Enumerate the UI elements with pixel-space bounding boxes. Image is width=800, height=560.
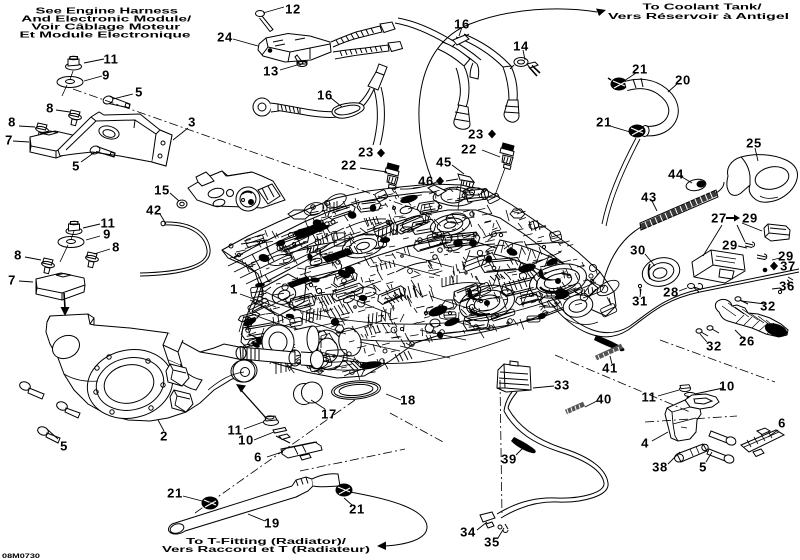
svg-text:6: 6: [254, 450, 262, 465]
svg-text:9: 9: [103, 227, 111, 242]
svg-text:25: 25: [746, 136, 762, 151]
svg-text:7: 7: [8, 273, 16, 288]
svg-text:24: 24: [217, 30, 233, 45]
svg-text:Vers Réservoir à Antigel: Vers Réservoir à Antigel: [608, 11, 789, 21]
svg-text:10: 10: [238, 433, 254, 448]
svg-text:39: 39: [501, 452, 517, 467]
svg-text:3: 3: [188, 115, 196, 130]
svg-text:22: 22: [461, 142, 477, 157]
svg-text:20: 20: [675, 73, 691, 88]
svg-text:32: 32: [760, 299, 776, 314]
svg-text:8: 8: [46, 101, 54, 116]
svg-text:35: 35: [484, 535, 500, 550]
svg-text:10: 10: [719, 379, 735, 394]
svg-text:23: 23: [468, 127, 484, 142]
svg-text:4: 4: [641, 436, 649, 451]
svg-text:12: 12: [285, 2, 301, 17]
svg-text:5: 5: [72, 159, 80, 174]
svg-text:33: 33: [554, 378, 570, 393]
svg-text:21: 21: [349, 502, 365, 517]
svg-text:27: 27: [711, 211, 727, 226]
svg-text:38: 38: [652, 460, 668, 475]
svg-text:11: 11: [104, 52, 119, 67]
svg-text:40: 40: [596, 392, 612, 407]
svg-text:44: 44: [668, 167, 684, 182]
svg-text:36: 36: [779, 279, 795, 294]
svg-text:14: 14: [513, 39, 529, 54]
svg-text:8: 8: [112, 240, 120, 255]
svg-text:34: 34: [460, 525, 476, 540]
svg-text:23: 23: [358, 145, 374, 160]
svg-text:18: 18: [400, 393, 416, 408]
svg-text:29: 29: [722, 238, 738, 253]
svg-text:15: 15: [154, 183, 170, 198]
svg-text:28: 28: [663, 285, 679, 300]
svg-text:13: 13: [263, 64, 279, 79]
svg-text:29: 29: [742, 211, 758, 226]
svg-text:26: 26: [739, 334, 755, 349]
svg-text:7: 7: [5, 133, 13, 148]
svg-text:16: 16: [317, 88, 333, 103]
svg-text:16: 16: [454, 17, 470, 32]
svg-text:8: 8: [14, 248, 22, 263]
svg-text:21: 21: [167, 486, 183, 501]
svg-text:43: 43: [641, 190, 657, 205]
svg-text:9: 9: [102, 68, 110, 83]
svg-text:42: 42: [146, 203, 162, 218]
svg-text:6: 6: [778, 416, 786, 431]
svg-text:8: 8: [8, 115, 16, 130]
svg-text:46: 46: [418, 174, 434, 189]
svg-text:22: 22: [341, 158, 357, 173]
svg-text:1: 1: [230, 282, 238, 297]
svg-text:32: 32: [706, 339, 722, 354]
svg-text:41: 41: [602, 361, 618, 376]
svg-text:5: 5: [135, 85, 143, 100]
svg-text:19: 19: [264, 516, 280, 531]
svg-text:30: 30: [630, 243, 646, 258]
svg-text:37: 37: [780, 259, 796, 274]
svg-text:08M0730: 08M0730: [2, 553, 41, 560]
svg-text:21: 21: [596, 115, 612, 130]
svg-text:45: 45: [436, 155, 452, 170]
svg-text:Et Module Electronique: Et Module Electronique: [20, 30, 191, 40]
svg-text:5: 5: [60, 439, 68, 454]
svg-text:Vers Raccord et T (Radiateur): Vers Raccord et T (Radiateur): [162, 544, 370, 554]
